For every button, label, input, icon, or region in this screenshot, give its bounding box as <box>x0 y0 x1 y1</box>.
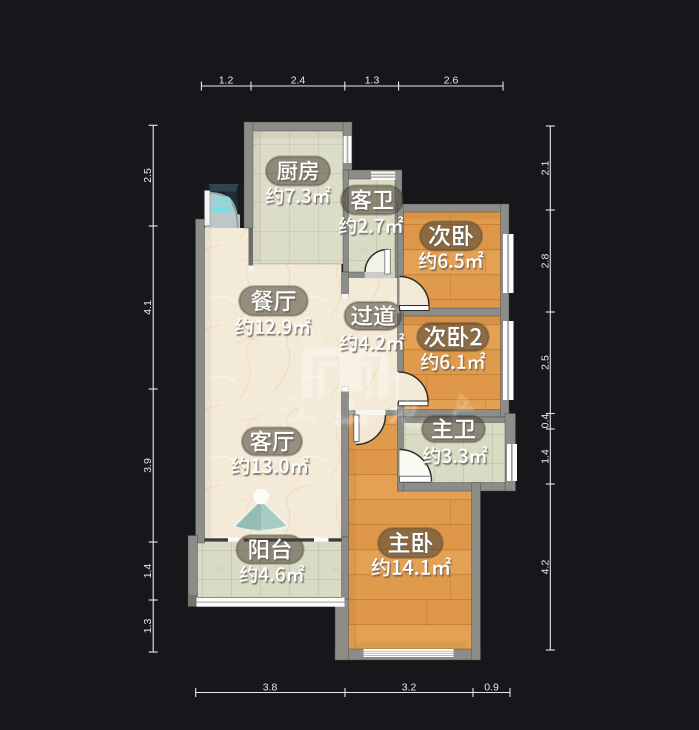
svg-text:2.6: 2.6 <box>444 74 459 86</box>
svg-text:2.8: 2.8 <box>539 254 551 269</box>
svg-text:1.2: 1.2 <box>219 74 234 86</box>
svg-text:1.4: 1.4 <box>142 564 154 579</box>
svg-text:1.3: 1.3 <box>142 619 154 634</box>
svg-text:4.2: 4.2 <box>539 560 551 575</box>
svg-text:3.9: 3.9 <box>142 458 154 473</box>
svg-text:1.3: 1.3 <box>365 74 380 86</box>
svg-text:0.4: 0.4 <box>539 414 551 429</box>
svg-text:2.5: 2.5 <box>142 168 154 183</box>
svg-text:2.5: 2.5 <box>539 355 551 370</box>
svg-text:2.1: 2.1 <box>539 161 551 176</box>
svg-text:1.4: 1.4 <box>539 449 551 464</box>
svg-text:0.9: 0.9 <box>484 681 499 693</box>
svg-text:3.8: 3.8 <box>263 681 278 693</box>
svg-text:3.2: 3.2 <box>402 681 417 693</box>
svg-text:2.4: 2.4 <box>291 74 306 86</box>
svg-text:4.1: 4.1 <box>142 300 154 315</box>
